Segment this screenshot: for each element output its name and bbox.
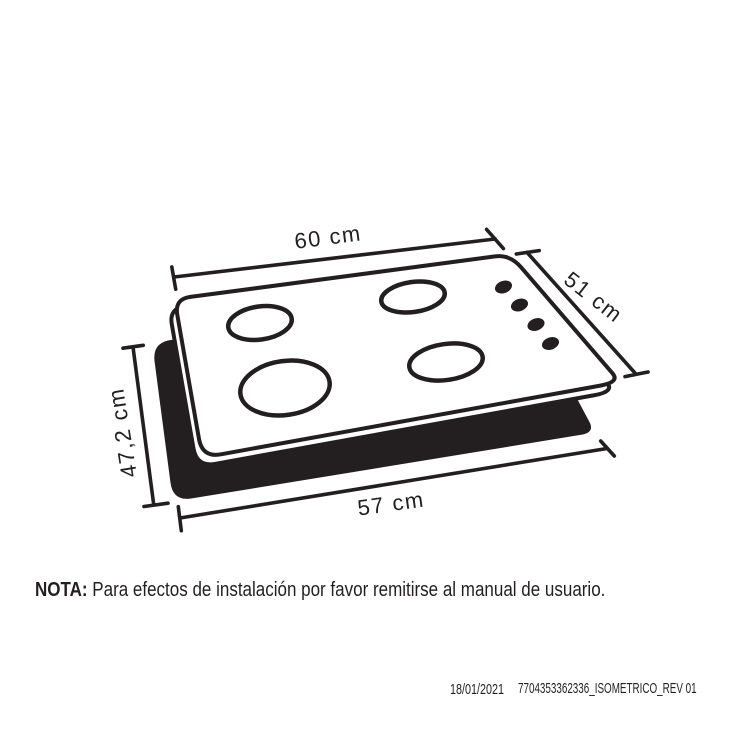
svg-text:47,2 cm: 47,2 cm [103,386,142,479]
svg-text:60 cm: 60 cm [293,220,363,253]
svg-text:57 cm: 57 cm [356,487,426,521]
svg-text:51 cm: 51 cm [559,266,628,327]
